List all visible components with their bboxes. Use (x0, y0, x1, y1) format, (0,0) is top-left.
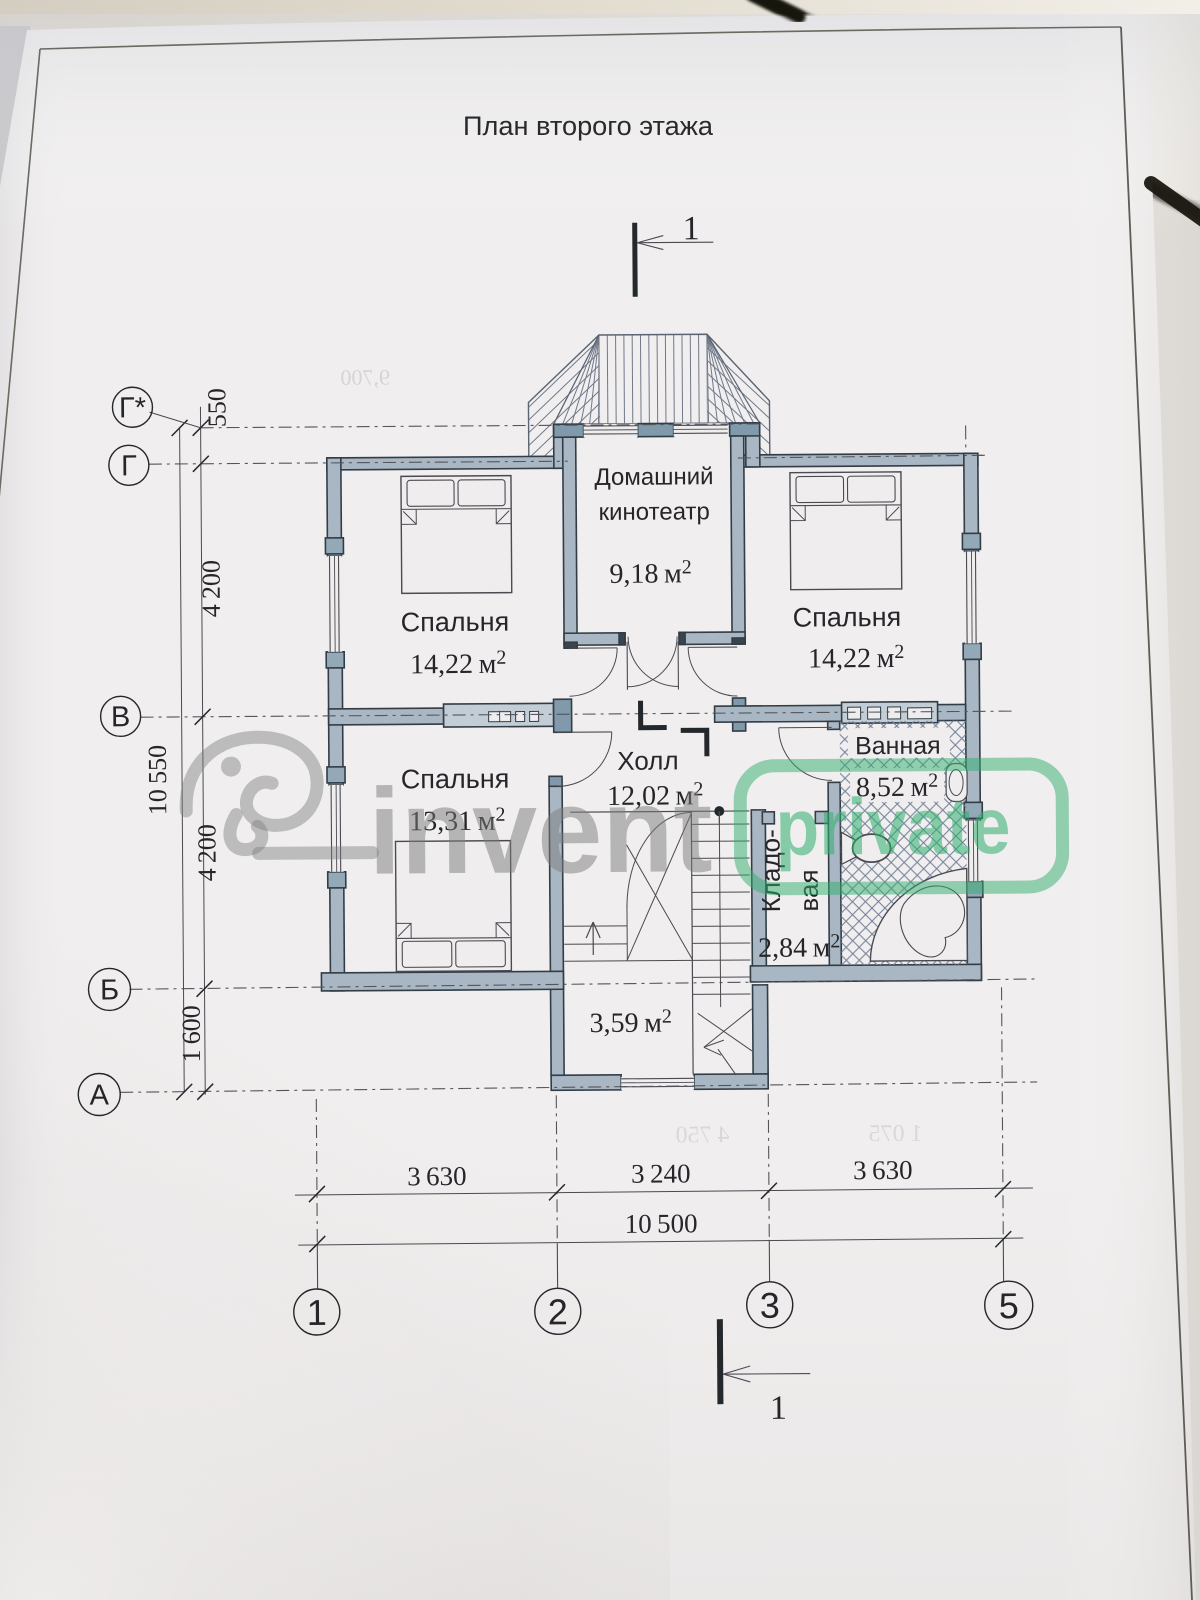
svg-text:14,22 м2: 14,22 м2 (808, 641, 905, 675)
svg-text:10 550: 10 550 (143, 745, 172, 815)
svg-text:Ванная: Ванная (855, 732, 941, 761)
svg-text:1: 1 (683, 210, 700, 247)
svg-text:2: 2 (548, 1291, 568, 1332)
svg-text:3,59 м2: 3,59 м2 (589, 1006, 672, 1040)
svg-text:Спальня: Спальня (793, 602, 902, 633)
svg-text:550: 550 (202, 388, 231, 427)
svg-text:4 750: 4 750 (675, 1122, 729, 1148)
svg-text:9,18 м2: 9,18 м2 (609, 556, 692, 590)
svg-text:3 240: 3 240 (631, 1158, 691, 1188)
svg-text:14,22 м2: 14,22 м2 (410, 647, 507, 681)
svg-text:1 600: 1 600 (177, 1005, 206, 1062)
svg-text:3: 3 (760, 1285, 780, 1326)
svg-text:9,700: 9,700 (340, 364, 390, 389)
svg-text:1: 1 (770, 1390, 787, 1427)
svg-text:3 630: 3 630 (407, 1161, 467, 1191)
svg-text:invent: invent (368, 761, 713, 899)
svg-text:Б: Б (100, 974, 119, 1006)
svg-text:Спальня: Спальня (401, 607, 510, 638)
svg-text:private: private (775, 781, 1011, 872)
svg-text:В: В (111, 701, 131, 733)
svg-text:1 075: 1 075 (868, 1121, 922, 1147)
svg-text:10 500: 10 500 (625, 1208, 698, 1239)
svg-text:Г*: Г* (119, 392, 146, 424)
svg-text:А: А (89, 1079, 109, 1111)
svg-text:2,84 м2: 2,84 м2 (758, 930, 841, 964)
svg-text:1: 1 (307, 1292, 327, 1333)
svg-text:3 630: 3 630 (853, 1155, 913, 1185)
svg-text:План второго этажа: План второго этажа (463, 111, 714, 141)
svg-text:Домашний: Домашний (594, 463, 713, 491)
svg-text:4 200: 4 200 (197, 560, 226, 617)
svg-text:Г: Г (121, 450, 137, 482)
svg-text:4 200: 4 200 (192, 824, 221, 881)
svg-text:кинотеатр: кинотеатр (598, 498, 709, 526)
svg-text:5: 5 (999, 1285, 1019, 1326)
